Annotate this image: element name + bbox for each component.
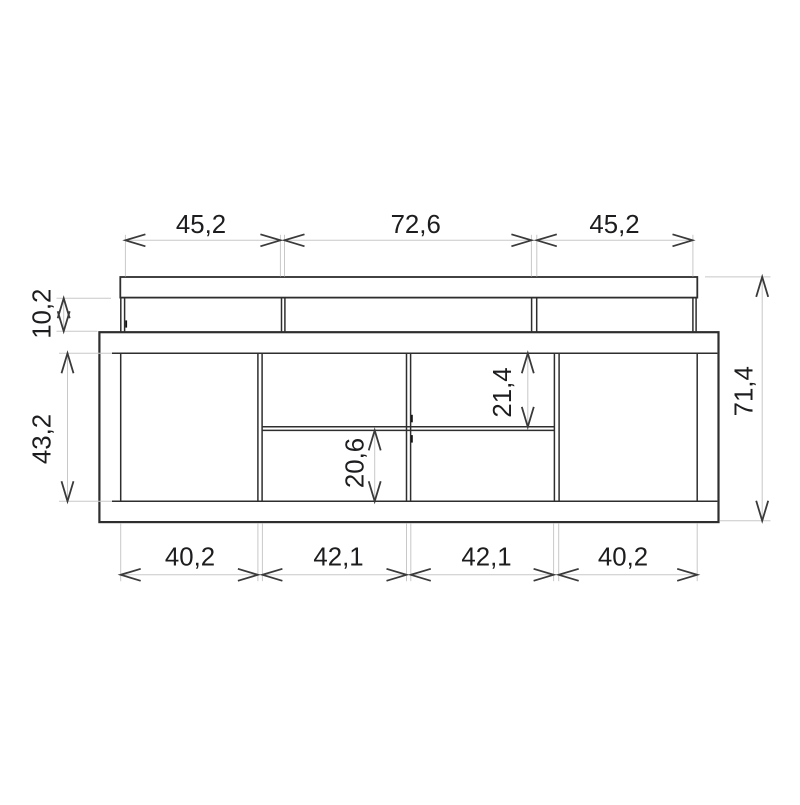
svg-text:10,2: 10,2 — [29, 289, 57, 339]
svg-text:40,2: 40,2 — [165, 544, 215, 572]
svg-text:45,2: 45,2 — [176, 211, 226, 239]
svg-text:45,2: 45,2 — [589, 211, 639, 239]
svg-text:21,4: 21,4 — [489, 367, 517, 417]
svg-text:42,1: 42,1 — [313, 544, 363, 572]
svg-text:72,6: 72,6 — [391, 211, 441, 239]
svg-text:43,2: 43,2 — [29, 414, 57, 464]
svg-text:42,1: 42,1 — [461, 544, 511, 572]
svg-text:71,4: 71,4 — [731, 366, 759, 416]
svg-text:40,2: 40,2 — [598, 544, 648, 572]
svg-text:20,6: 20,6 — [341, 438, 369, 488]
